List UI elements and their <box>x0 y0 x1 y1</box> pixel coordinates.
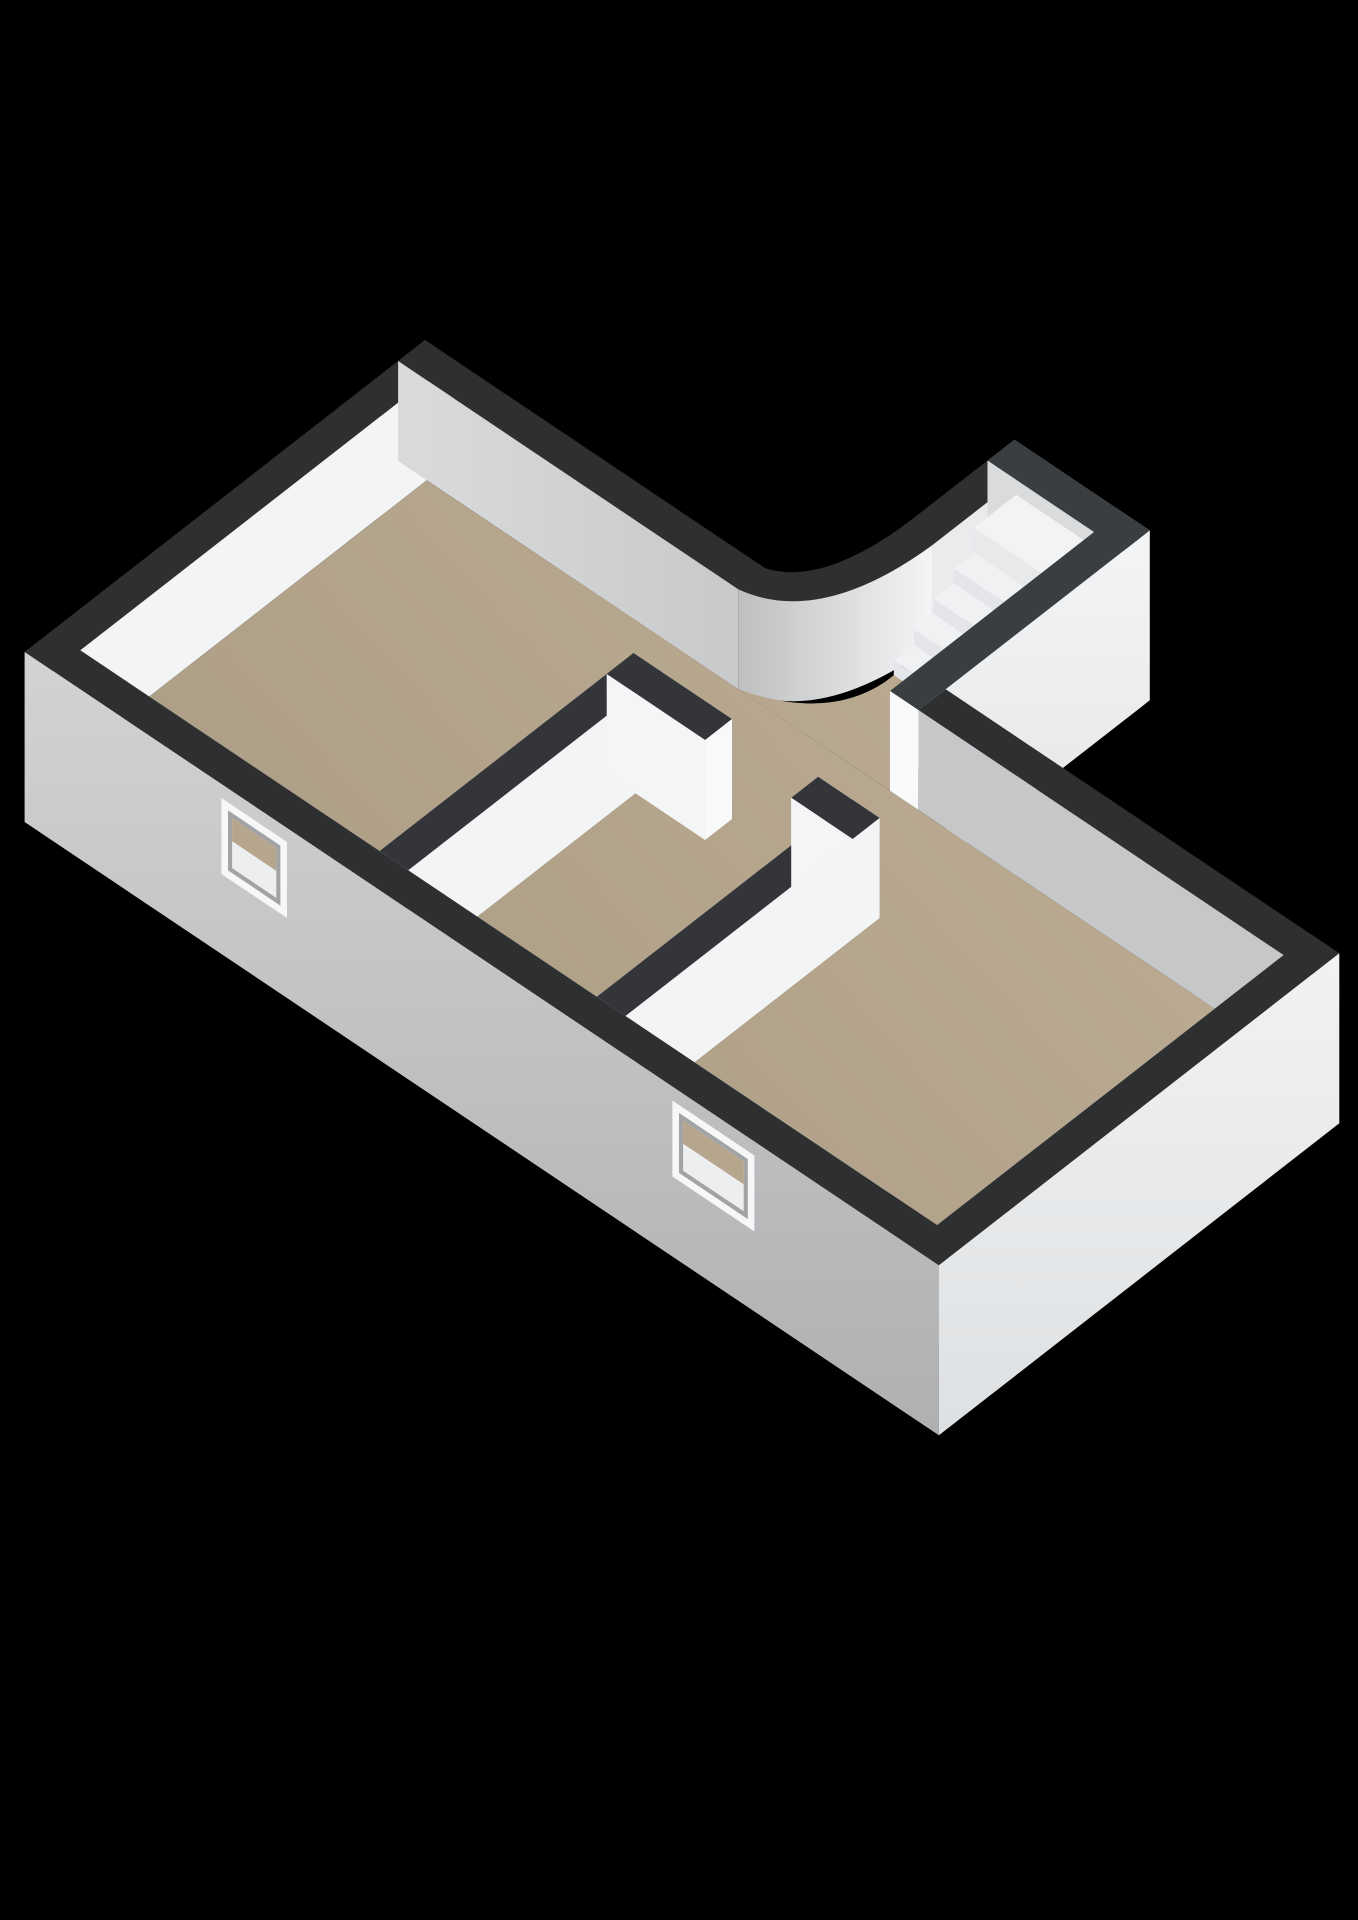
floorplan-3d-render <box>0 0 1358 1920</box>
floorplan-render-stage <box>0 0 1358 1920</box>
corridor-door-left-jamb <box>705 719 732 840</box>
stair-opening-jamb <box>890 691 919 810</box>
